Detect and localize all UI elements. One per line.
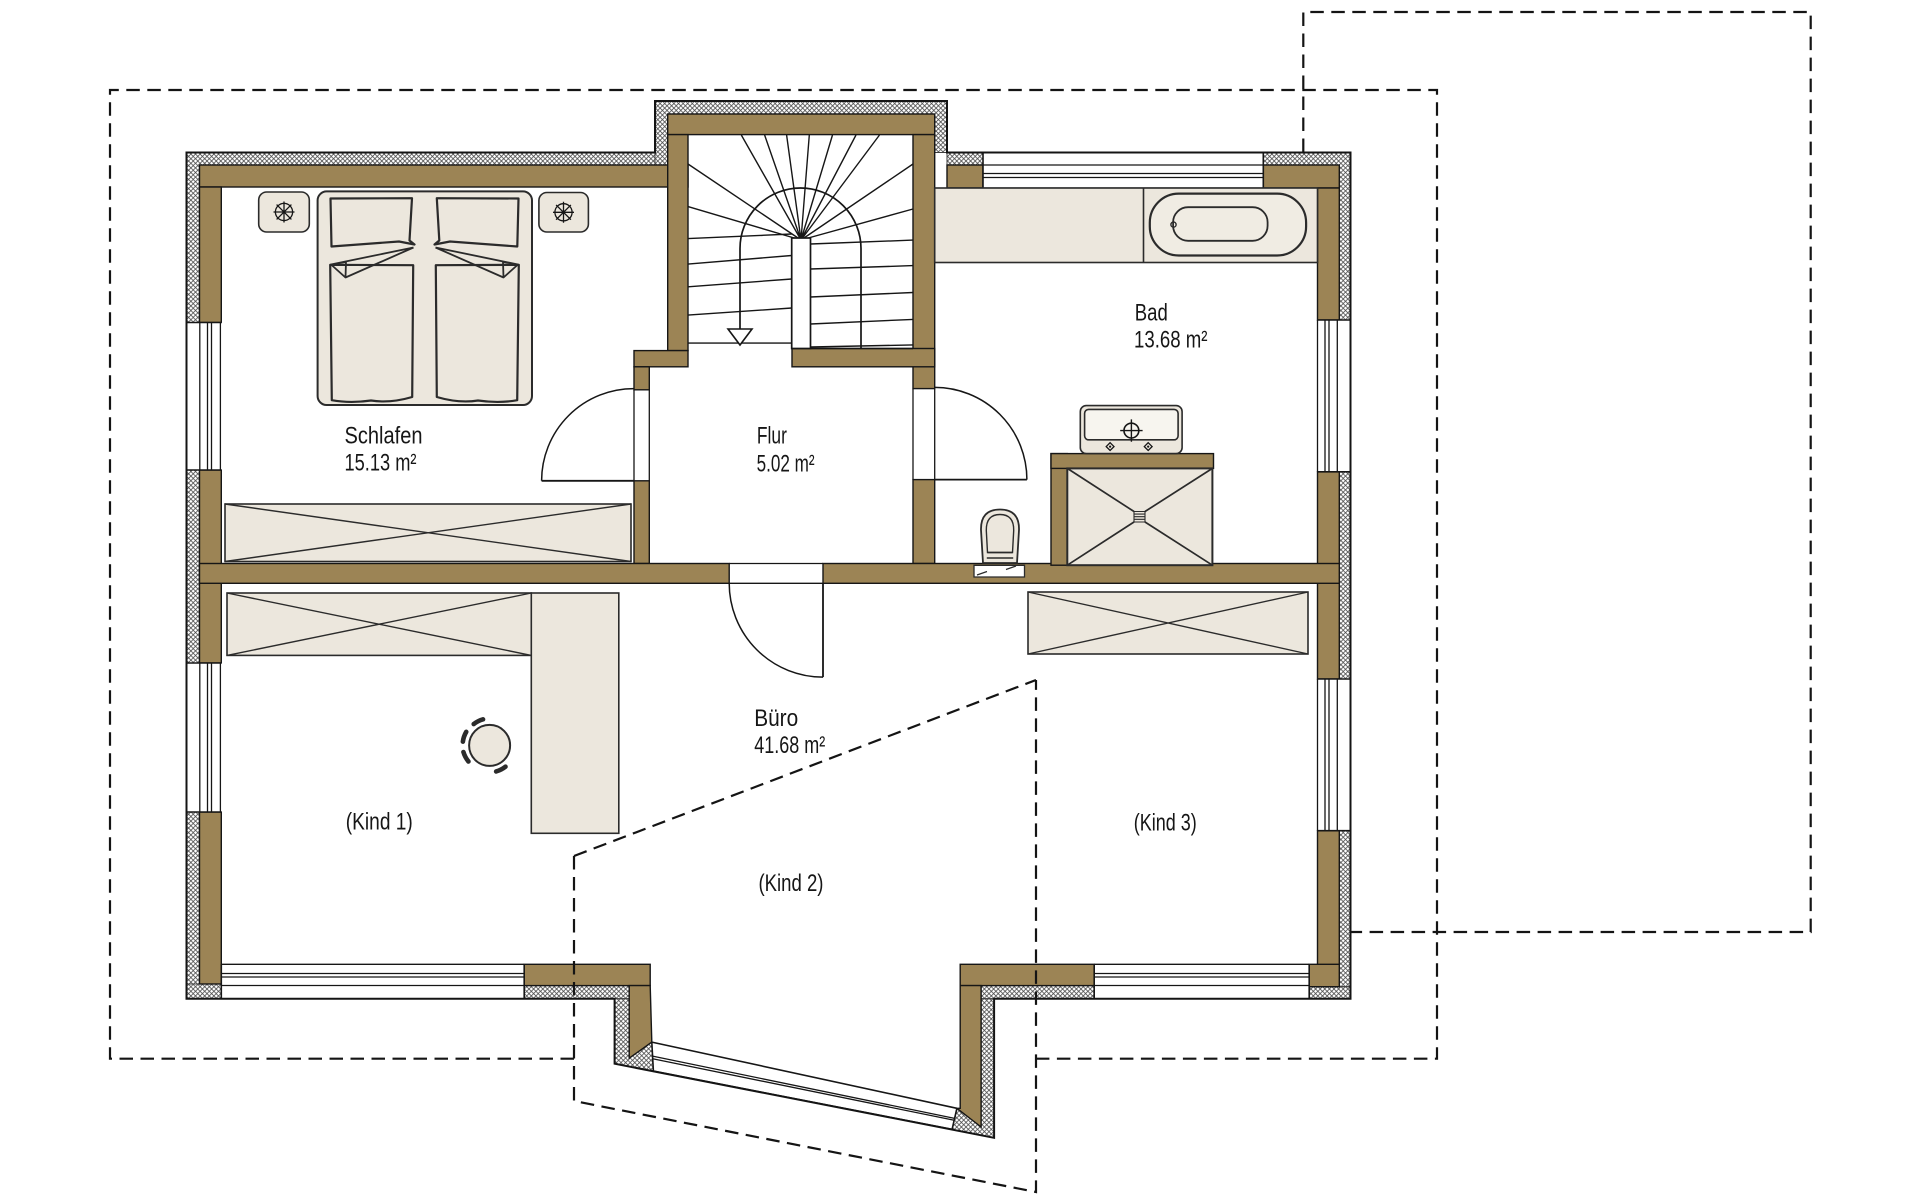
- svg-text:41.68 m²: 41.68 m²: [754, 732, 825, 759]
- svg-text:13.68 m²: 13.68 m²: [1134, 326, 1208, 353]
- svg-text:Büro: Büro: [754, 705, 798, 732]
- svg-text:(Kind 3): (Kind 3): [1134, 810, 1197, 837]
- svg-text:Flur: Flur: [757, 422, 787, 449]
- svg-text:15.13 m²: 15.13 m²: [345, 449, 417, 476]
- svg-text:Bad: Bad: [1135, 299, 1168, 326]
- svg-text:(Kind 1): (Kind 1): [346, 809, 413, 836]
- svg-text:Schlafen: Schlafen: [345, 423, 423, 450]
- svg-text:(Kind 2): (Kind 2): [759, 870, 824, 897]
- svg-text:5.02 m²: 5.02 m²: [757, 451, 815, 478]
